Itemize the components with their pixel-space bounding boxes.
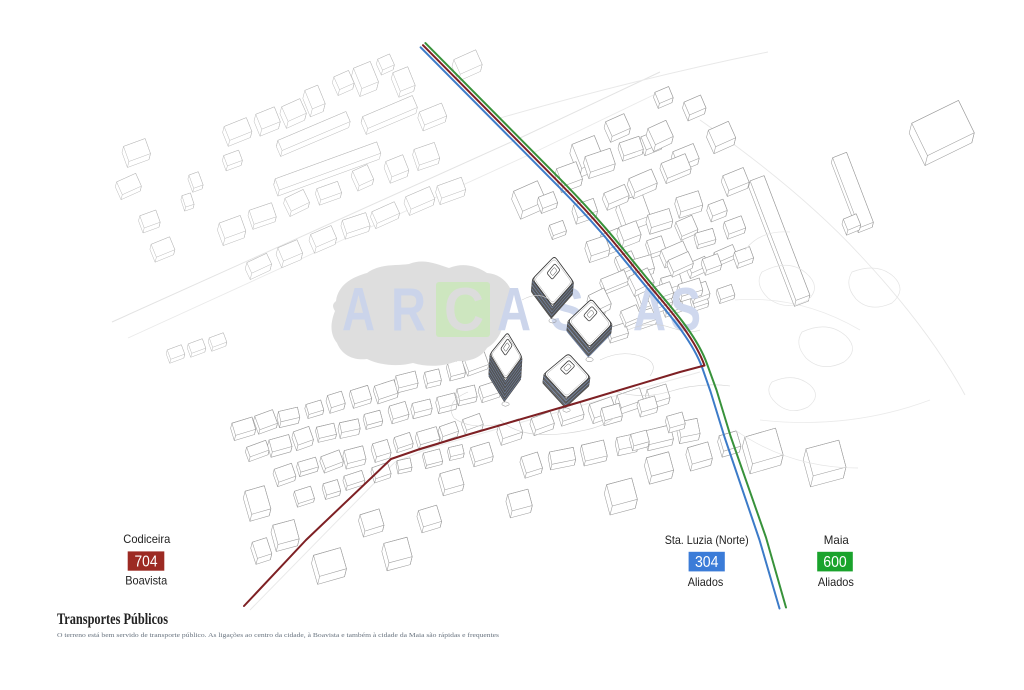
svg-text:704: 704 xyxy=(135,554,158,571)
svg-text:A: A xyxy=(497,276,531,344)
svg-text:304: 304 xyxy=(695,554,719,571)
svg-text:Maia: Maia xyxy=(824,533,849,547)
svg-text:Aliados: Aliados xyxy=(818,575,854,589)
svg-text:Boavista: Boavista xyxy=(125,574,167,588)
svg-text:Codiceira: Codiceira xyxy=(123,532,170,546)
svg-text:600: 600 xyxy=(823,554,847,571)
svg-text:S: S xyxy=(670,276,701,344)
svg-text:O terreno está bem servido de: O terreno está bem servido de transporte… xyxy=(57,632,500,639)
svg-text:Sta. Luzia (Norte): Sta. Luzia (Norte) xyxy=(665,533,749,547)
svg-text:R: R xyxy=(391,276,426,344)
svg-text:Transportes Públicos: Transportes Públicos xyxy=(57,611,168,628)
svg-text:A: A xyxy=(342,276,375,344)
svg-text:C: C xyxy=(444,276,484,344)
svg-text:Aliados: Aliados xyxy=(688,575,724,589)
